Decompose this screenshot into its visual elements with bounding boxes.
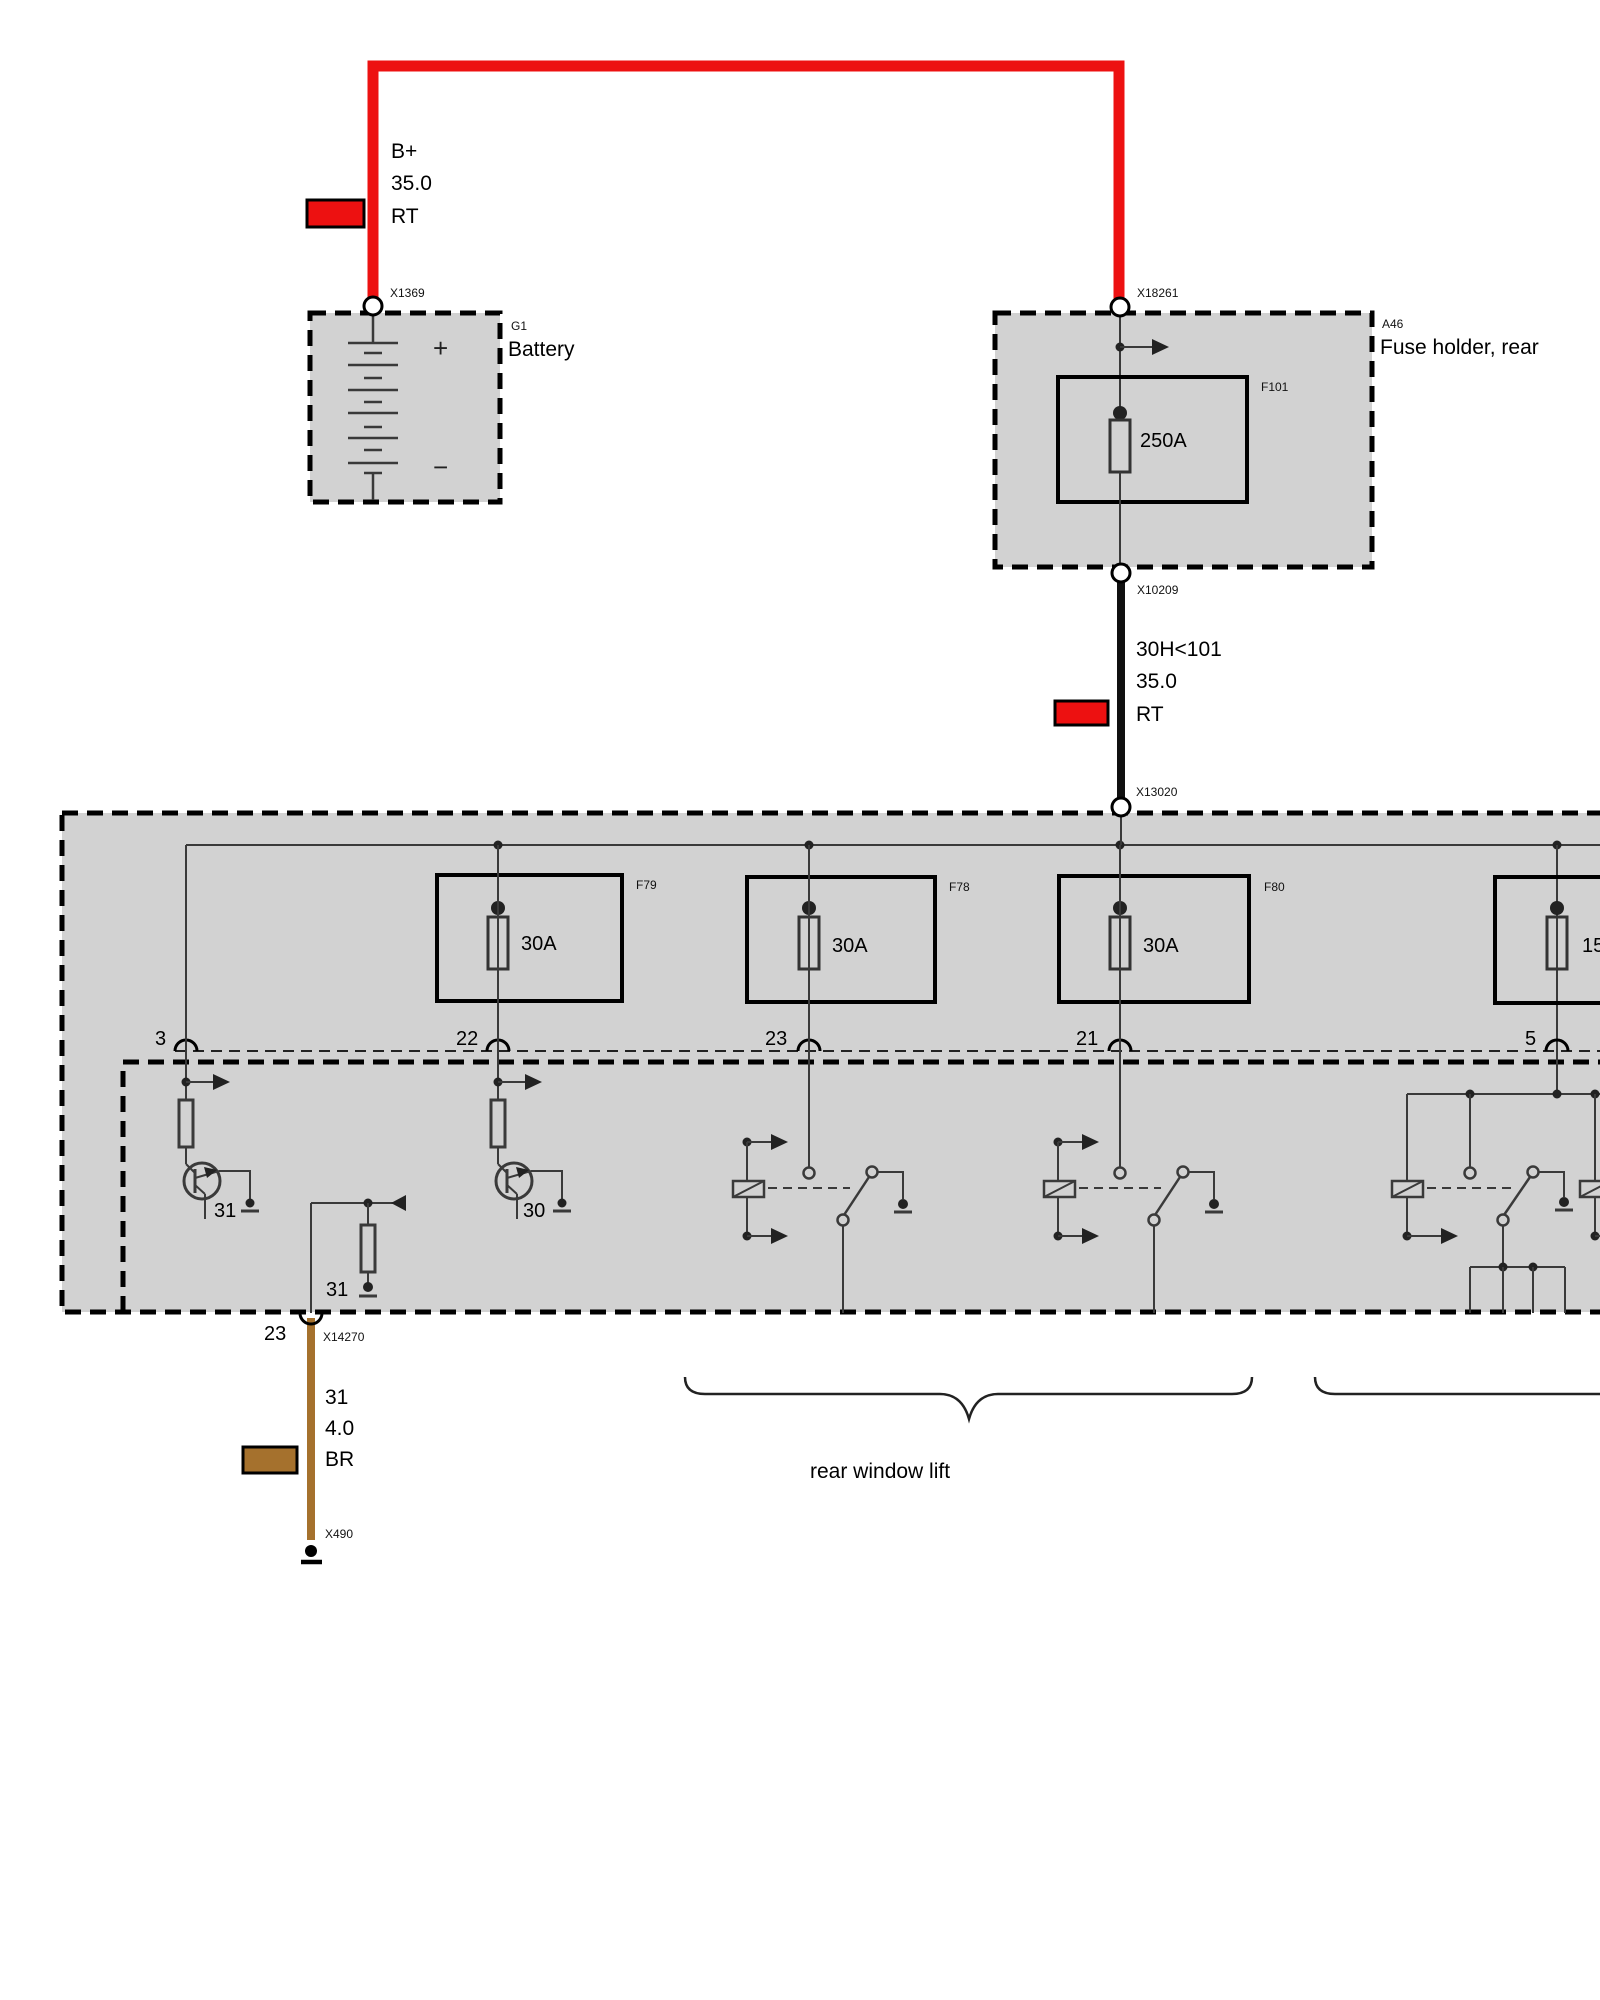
wire-color-swatch-brown [243, 1447, 297, 1473]
ground-x490-icon [301, 1545, 322, 1562]
battery-plus-label: + [433, 334, 448, 363]
wire1-circuit-label: B+ [391, 140, 417, 164]
pin-3-label: 3 [155, 1028, 166, 1050]
pin-22-label: 22 [456, 1028, 478, 1050]
fuse-f78-ref-label: F78 [949, 881, 970, 894]
battery-ref-label: G1 [511, 320, 527, 333]
brace-second-group [1315, 1377, 1600, 1394]
fuse-f101-ref-label: F101 [1261, 381, 1288, 394]
wiring-diagram [0, 0, 1600, 2000]
connector-x1369-label: X1369 [390, 287, 425, 300]
wire1-color-label: RT [391, 205, 419, 229]
battery-box [310, 313, 500, 502]
resistor-ground-label: 31 [326, 1279, 348, 1301]
pin-5-label: 5 [1525, 1028, 1536, 1050]
wire3-circuit-label: 31 [325, 1386, 348, 1410]
wire3-gauge-label: 4.0 [325, 1417, 354, 1441]
battery-minus-label: − [433, 453, 448, 482]
wire-color-swatch-red-1 [307, 200, 364, 227]
wire1-gauge-label: 35.0 [391, 172, 432, 196]
wire2-gauge-label: 35.0 [1136, 670, 1177, 694]
battery-positive-wire [373, 66, 1119, 311]
connector-x10209 [1112, 564, 1130, 582]
fuse-f78-rating-label: 30A [832, 935, 868, 957]
fuse-holder-ref-label: A46 [1382, 318, 1403, 331]
connector-x10209-label: X10209 [1137, 584, 1178, 597]
connector-x14270-label: X14270 [323, 1331, 364, 1344]
wire2-color-label: RT [1136, 703, 1164, 727]
transistor1-terminal-label: 31 [214, 1200, 236, 1222]
connector-x13020-label: X13020 [1136, 786, 1177, 799]
brace-rear-window-lift [685, 1377, 1600, 1419]
fuse-f79-rating-label: 30A [521, 933, 557, 955]
pin-23-label: 23 [765, 1028, 787, 1050]
connector-x1369 [364, 297, 382, 315]
fuse-f79-ref-label: F79 [636, 879, 657, 892]
connector-x18261 [1111, 298, 1129, 316]
fuse-f80-rating-label: 30A [1143, 935, 1179, 957]
fuse-holder-name-label: Fuse holder, rear [1380, 336, 1539, 360]
pin-21-label: 21 [1076, 1028, 1098, 1050]
fuse-15a-rating-label: 15 [1582, 935, 1600, 957]
bottom-pin-23-label: 23 [264, 1323, 286, 1345]
wiring-diagram-page: B+ 35.0 RT X1369 G1 Battery + − X18261 A… [0, 0, 1600, 2000]
wire2-circuit-label: 30H<101 [1136, 638, 1222, 662]
connector-x13020 [1112, 798, 1130, 816]
wire-color-swatch-red-2 [1055, 701, 1108, 725]
fuse-f101-rating-label: 250A [1140, 430, 1187, 452]
fuse-f80-ref-label: F80 [1264, 881, 1285, 894]
wire3-color-label: BR [325, 1448, 354, 1472]
connector-x18261-label: X18261 [1137, 287, 1178, 300]
connector-x490-label: X490 [325, 1528, 353, 1541]
rear-window-lift-label: rear window lift [810, 1460, 950, 1484]
battery-name-label: Battery [508, 338, 575, 362]
distribution-box [62, 813, 1600, 1312]
transistor2-terminal-label: 30 [523, 1200, 545, 1222]
